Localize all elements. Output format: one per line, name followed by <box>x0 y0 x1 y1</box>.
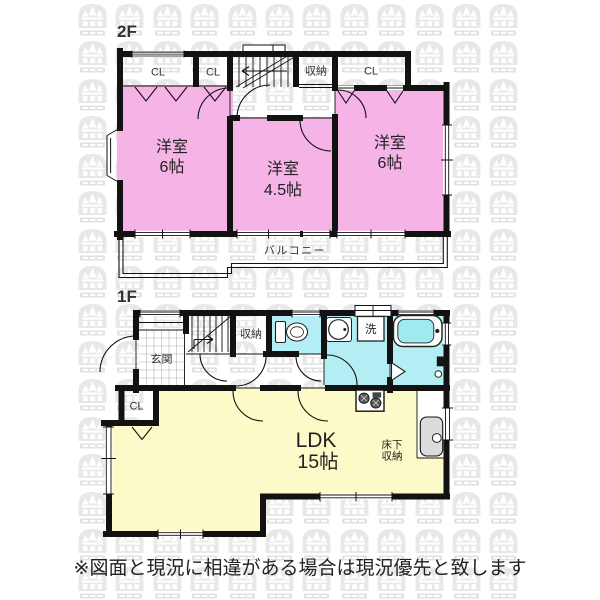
window-1f-washroom-bay <box>355 306 391 317</box>
room-west-left-size: 6帖 <box>160 158 185 176</box>
ldk-name: LDK <box>296 429 337 452</box>
stair-treads-2f <box>239 57 288 87</box>
room-west-center-name: 洋室 <box>267 160 299 178</box>
window-1f-bath-right <box>442 323 451 345</box>
floor1-plan: 洗 <box>100 287 453 539</box>
kitchen-sink-icon <box>420 417 442 456</box>
window-1f-ldk-bottom-left <box>158 530 203 540</box>
floor1-label: 1F <box>117 287 137 306</box>
entrance-label: 玄関 <box>151 352 173 366</box>
room-west-right-name: 洋室 <box>374 134 406 152</box>
room-west-right-size: 6帖 <box>378 154 403 172</box>
stairs-1f <box>188 316 231 352</box>
floorplan-drawing: 2F CL CL 収納 CL 洋室 6帖 洋室 4.5帖 洋室 6帖 バルコニー <box>0 0 600 600</box>
underfloor-storage-line2: 収納 <box>382 450 403 463</box>
washbasin-icon <box>327 318 352 342</box>
stair-direction-arrow-2f <box>242 67 287 76</box>
balcony-label: バルコニー <box>264 244 326 257</box>
window-1f-ldk-bottom-right <box>320 492 392 502</box>
door-hall-2f <box>237 85 270 118</box>
closet2-label-2f: CL <box>206 67 220 79</box>
door-gap-lines-2f <box>230 88 335 119</box>
room-west-center-size: 4.5帖 <box>264 181 302 199</box>
room-west-left-name: 洋室 <box>156 138 188 156</box>
closet1-label-2f: CL <box>151 67 165 79</box>
toilet-icon <box>276 322 308 343</box>
laundry-label: 洗 <box>365 323 377 336</box>
balcony-outline <box>119 237 447 278</box>
closet3-label-2f: CL <box>364 66 378 78</box>
underfloor-storage-line1: 床下 <box>382 438 403 451</box>
storage-label-1f: 収納 <box>240 328 262 341</box>
stair-door-arc <box>200 354 227 381</box>
windows-2f-balcony <box>135 230 405 239</box>
bathtub-icon <box>394 316 443 347</box>
floor2-plan: 2F CL CL 収納 CL 洋室 6帖 洋室 4.5帖 洋室 6帖 バルコニー <box>107 22 453 278</box>
washing-machine-box: 洗 <box>358 317 385 342</box>
disclaimer-text: ※図面と現況に相違がある場合は現況優先と致します <box>74 557 527 579</box>
stove-icon <box>356 390 384 411</box>
floorplan-page: 2F CL CL 収納 CL 洋室 6帖 洋室 4.5帖 洋室 6帖 バルコニー <box>0 0 600 600</box>
floor2-label: 2F <box>117 22 137 41</box>
stair-landing-2f <box>243 45 285 52</box>
storage-door-arc-1f <box>236 356 266 386</box>
toilet-door-arc <box>296 356 321 381</box>
ldk-size: 15帖 <box>297 451 338 473</box>
window-1f-kitchen-right <box>442 408 453 440</box>
storage-label-2f: 収納 <box>305 65 327 78</box>
closet-label-1f: CL <box>129 401 143 413</box>
front-door-arc <box>100 336 136 372</box>
window-2f-top <box>132 51 184 58</box>
window-1f-entrance-top <box>140 310 180 318</box>
